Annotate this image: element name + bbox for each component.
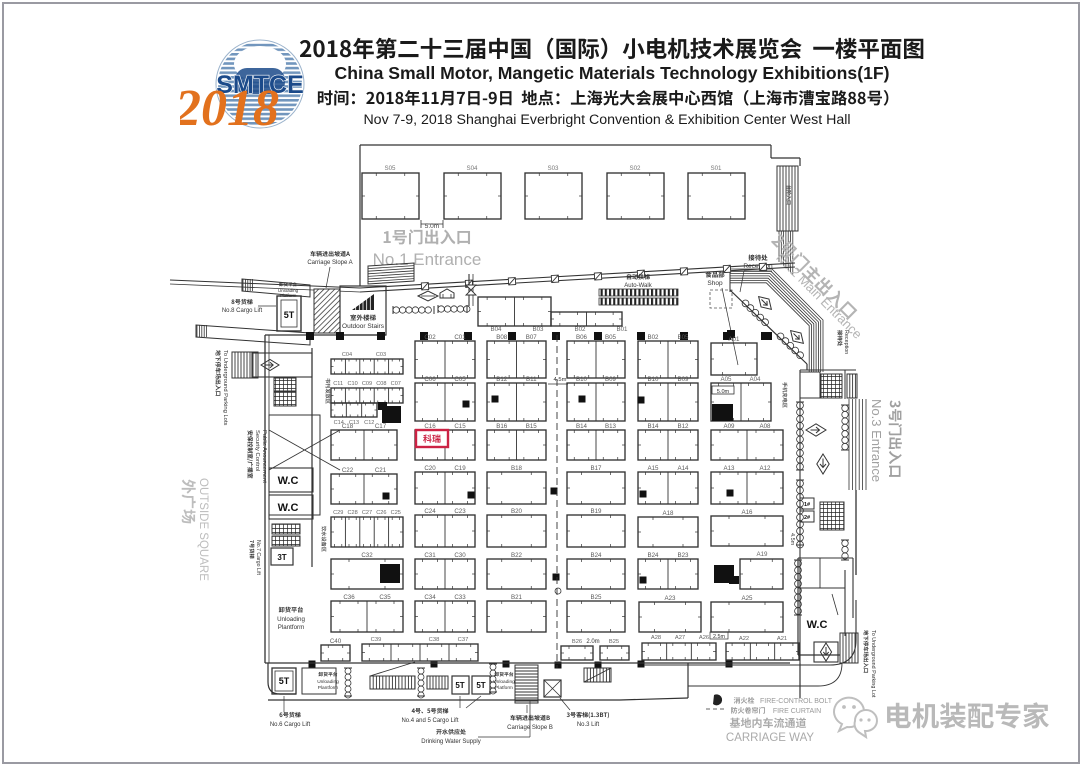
svg-text:B02: B02 [647, 334, 659, 341]
svg-text:C21: C21 [375, 467, 387, 474]
svg-text:5.0m: 5.0m [425, 223, 439, 230]
svg-text:S01: S01 [710, 165, 722, 172]
svg-text:C07: C07 [391, 381, 401, 387]
svg-text:Unloading: Unloading [317, 679, 339, 685]
svg-text:Platform: Platform [495, 685, 513, 691]
svg-text:Auto-Walk: Auto-Walk [624, 283, 652, 289]
svg-text:A18: A18 [662, 510, 674, 517]
svg-text:C28: C28 [347, 510, 357, 516]
svg-text:B25: B25 [590, 594, 602, 601]
svg-text:No.7 Cargo Lift: No.7 Cargo Lift [255, 540, 261, 575]
svg-text:Carriage Slope B: Carriage Slope B [507, 725, 553, 731]
svg-text:C09: C09 [362, 381, 372, 387]
svg-text:2#: 2# [804, 515, 810, 521]
svg-text:B04: B04 [490, 326, 502, 333]
svg-text:A15: A15 [647, 465, 659, 472]
svg-text:A23: A23 [664, 595, 676, 602]
svg-text:Unloading: Unloading [277, 616, 305, 623]
svg-text:5.0m: 5.0m [717, 389, 730, 395]
svg-text:4.5m: 4.5m [789, 533, 795, 546]
svg-text:2.0m: 2.0m [586, 639, 599, 645]
svg-text:C33: C33 [454, 594, 466, 601]
svg-text:C05: C05 [454, 376, 466, 383]
svg-text:C29: C29 [333, 510, 343, 516]
svg-text:C37: C37 [458, 637, 469, 643]
svg-text:Plantform: Plantform [318, 685, 339, 691]
svg-text:B21: B21 [511, 594, 523, 601]
svg-text:5T: 5T [284, 310, 295, 320]
svg-text:Plantform: Plantform [278, 624, 304, 631]
svg-text:C39: C39 [371, 637, 382, 643]
svg-text:C03: C03 [376, 352, 386, 358]
svg-text:S04: S04 [466, 165, 478, 172]
svg-text:No.8 Cargo Lift: No.8 Cargo Lift [222, 308, 263, 314]
svg-text:FIRE CURTAIN: FIRE CURTAIN [773, 708, 821, 715]
svg-text:B24: B24 [590, 552, 602, 559]
svg-text:Carriage Slope A: Carriage Slope A [307, 260, 352, 266]
svg-text:A05: A05 [720, 376, 732, 383]
svg-text:A04: A04 [749, 376, 761, 383]
svg-text:C15: C15 [454, 423, 466, 430]
svg-text:A22: A22 [739, 636, 749, 642]
svg-text:1#: 1# [804, 502, 810, 508]
svg-text:A12: A12 [759, 465, 771, 472]
svg-text:A13: A13 [723, 465, 735, 472]
svg-text:Security Control: Security Control [254, 430, 260, 471]
svg-text:To Underground Parking Lot: To Underground Parking Lot [870, 630, 876, 698]
svg-text:C18: C18 [342, 423, 354, 430]
svg-text:B16: B16 [496, 423, 508, 430]
svg-text:W.C: W.C [278, 475, 299, 487]
svg-text:C04: C04 [342, 352, 352, 358]
svg-text:Public Anouncement: Public Anouncement [261, 430, 267, 483]
svg-text:C24: C24 [424, 508, 436, 515]
svg-text:C19: C19 [454, 465, 466, 472]
svg-text:Outdoor Stairs: Outdoor Stairs [342, 323, 385, 330]
svg-text:To Underground Parking Lots: To Underground Parking Lots [222, 350, 228, 426]
svg-text:A08: A08 [759, 423, 771, 430]
svg-text:B18: B18 [511, 465, 523, 472]
svg-text:B14: B14 [647, 423, 659, 430]
svg-text:A16: A16 [741, 509, 753, 516]
svg-text:C01: C01 [454, 334, 466, 341]
svg-text:A27: A27 [675, 635, 685, 641]
svg-text:B11: B11 [526, 376, 537, 383]
svg-text:B12: B12 [496, 376, 508, 383]
svg-text:No.4 and 5 Cargo Lift: No.4 and 5 Cargo Lift [401, 718, 458, 724]
svg-text:B05: B05 [605, 334, 617, 341]
svg-text:C11: C11 [333, 381, 343, 387]
svg-text:5T: 5T [476, 681, 485, 690]
svg-text:C35: C35 [379, 594, 391, 601]
svg-text:B06: B06 [576, 334, 588, 341]
svg-text:A14: A14 [677, 465, 689, 472]
svg-text:2.5m: 2.5m [713, 634, 725, 640]
svg-text:C02: C02 [424, 334, 436, 341]
svg-text:3T: 3T [277, 553, 286, 562]
svg-text:A25: A25 [741, 595, 753, 602]
svg-text:OUTSIDE SQUARE: OUTSIDE SQUARE [197, 478, 209, 581]
svg-text:B12: B12 [677, 423, 689, 430]
svg-text:A21: A21 [777, 636, 787, 642]
svg-text:B20: B20 [511, 508, 523, 515]
svg-text:C17: C17 [375, 423, 387, 430]
svg-text:C20: C20 [424, 465, 436, 472]
svg-text:S05: S05 [384, 165, 396, 172]
svg-text:B26: B26 [572, 639, 582, 645]
svg-text:S03: S03 [547, 165, 559, 172]
svg-text:C08: C08 [376, 381, 386, 387]
svg-text:C10: C10 [347, 381, 357, 387]
svg-text:B24: B24 [647, 552, 659, 559]
svg-text:C30: C30 [454, 552, 466, 559]
svg-text:B03: B03 [532, 326, 544, 333]
svg-text:C38: C38 [429, 637, 440, 643]
svg-text:Drinking Water Supply: Drinking Water Supply [421, 739, 480, 745]
svg-text:B08: B08 [496, 334, 508, 341]
svg-text:A26: A26 [699, 635, 709, 641]
svg-text:5T: 5T [279, 676, 290, 686]
svg-text:C26: C26 [376, 510, 386, 516]
svg-text:Shop: Shop [707, 280, 723, 287]
svg-text:B14: B14 [576, 423, 588, 430]
svg-text:A09: A09 [723, 423, 735, 430]
svg-text:B02: B02 [574, 326, 586, 333]
svg-text:B05: B05 [677, 334, 689, 341]
svg-text:Reception: Reception [843, 330, 849, 354]
svg-text:B17: B17 [590, 465, 602, 472]
svg-text:A28: A28 [651, 635, 661, 641]
svg-text:C23: C23 [454, 508, 466, 515]
svg-text:B19: B19 [590, 508, 602, 515]
svg-text:W.C: W.C [807, 619, 828, 631]
svg-text:C34: C34 [424, 594, 436, 601]
svg-text:5T: 5T [455, 681, 464, 690]
svg-text:CARRIAGE WAY: CARRIAGE WAY [726, 732, 815, 744]
svg-text:B23: B23 [677, 552, 689, 559]
svg-text:C36: C36 [343, 594, 355, 601]
svg-text:No.6 Cargo Lift: No.6 Cargo Lift [270, 722, 311, 728]
svg-text:Unloading: Unloading [493, 679, 515, 685]
svg-text:B13: B13 [605, 423, 617, 430]
svg-text:C25: C25 [391, 510, 401, 516]
svg-text:B10: B10 [576, 376, 588, 383]
svg-text:4.5m: 4.5m [554, 377, 567, 383]
svg-text:B01: B01 [616, 326, 628, 333]
svg-text:C22: C22 [342, 467, 354, 474]
svg-text:C40: C40 [330, 638, 342, 645]
svg-text:B10: B10 [647, 376, 659, 383]
svg-text:No.3 Entrance: No.3 Entrance [869, 399, 884, 482]
svg-text:FIRE-CONTROL BOLT: FIRE-CONTROL BOLT [760, 698, 833, 705]
svg-text:A01: A01 [728, 336, 740, 343]
svg-text:B07: B07 [526, 334, 538, 341]
svg-text:S02: S02 [629, 165, 641, 172]
svg-text:B25: B25 [609, 639, 619, 645]
svg-text:B22: B22 [511, 552, 523, 559]
svg-text:A19: A19 [756, 551, 768, 558]
svg-text:B09: B09 [677, 376, 689, 383]
svg-text:C27: C27 [362, 510, 372, 516]
svg-text:C12: C12 [364, 420, 374, 426]
svg-text:No.1 Entrance: No.1 Entrance [373, 250, 482, 269]
svg-text:B15: B15 [526, 423, 538, 430]
svg-text:No.3 Lift: No.3 Lift [577, 722, 600, 728]
svg-text:C31: C31 [424, 552, 436, 559]
svg-text:W.C: W.C [278, 502, 299, 514]
svg-text:B09: B09 [605, 376, 617, 383]
svg-text:C06: C06 [424, 376, 436, 383]
svg-text:C32: C32 [361, 552, 373, 559]
